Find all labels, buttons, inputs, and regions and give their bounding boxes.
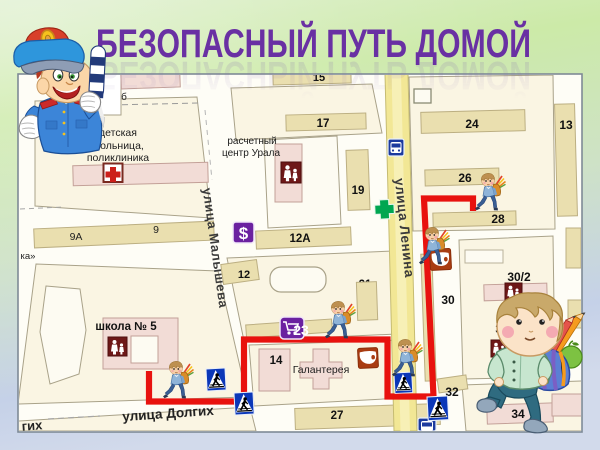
- svg-text:28: 28: [491, 212, 505, 226]
- svg-text:ка»: ка»: [21, 251, 36, 262]
- svg-text:19: 19: [352, 185, 365, 197]
- svg-text:12А: 12А: [289, 233, 310, 245]
- svg-text:детская: детская: [99, 127, 137, 139]
- svg-text:24: 24: [465, 117, 479, 131]
- svg-text:Галантерея: Галантерея: [293, 364, 350, 376]
- svg-text:27: 27: [331, 410, 344, 422]
- svg-text:13: 13: [559, 118, 573, 132]
- svg-text:центр Урала: центр Урала: [222, 148, 280, 159]
- svg-text:школа № 5: школа № 5: [95, 321, 157, 333]
- svg-text:26: 26: [458, 171, 472, 185]
- svg-text:$: $: [239, 224, 249, 243]
- svg-text:9А: 9А: [70, 231, 83, 243]
- svg-text:34: 34: [511, 407, 525, 421]
- svg-text:23: 23: [293, 322, 309, 338]
- svg-text:больница,: больница,: [94, 140, 144, 152]
- svg-text:17: 17: [317, 118, 330, 130]
- svg-text:9: 9: [153, 224, 159, 236]
- svg-text:30: 30: [441, 293, 455, 307]
- svg-text:12: 12: [238, 269, 250, 281]
- svg-text:30/2: 30/2: [507, 270, 531, 284]
- svg-text:поликлиника: поликлиника: [87, 152, 149, 164]
- svg-text:БЕЗОПАСНЫЙ ПУТЬ ДОМОЙ: БЕЗОПАСНЫЙ ПУТЬ ДОМОЙ: [96, 20, 531, 66]
- svg-text:14: 14: [270, 355, 283, 367]
- svg-text:расчетный: расчетный: [227, 136, 276, 147]
